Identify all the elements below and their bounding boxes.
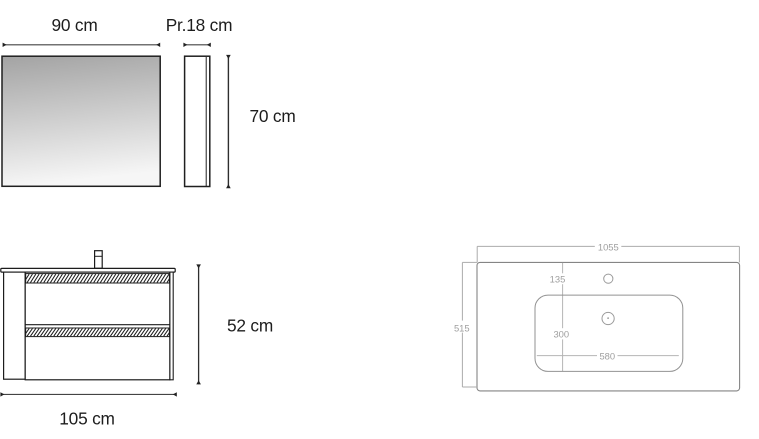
svg-text:105 cm: 105 cm — [59, 408, 114, 428]
svg-text:580: 580 — [599, 351, 615, 362]
svg-text:300: 300 — [553, 329, 569, 340]
svg-text:Pr.18 cm: Pr.18 cm — [166, 15, 233, 35]
svg-text:70 cm: 70 cm — [249, 106, 295, 126]
svg-text:1055: 1055 — [598, 241, 619, 252]
svg-text:52 cm: 52 cm — [227, 316, 273, 336]
svg-text:90 cm: 90 cm — [51, 15, 97, 35]
svg-text:135: 135 — [550, 274, 566, 285]
svg-text:515: 515 — [454, 322, 470, 333]
